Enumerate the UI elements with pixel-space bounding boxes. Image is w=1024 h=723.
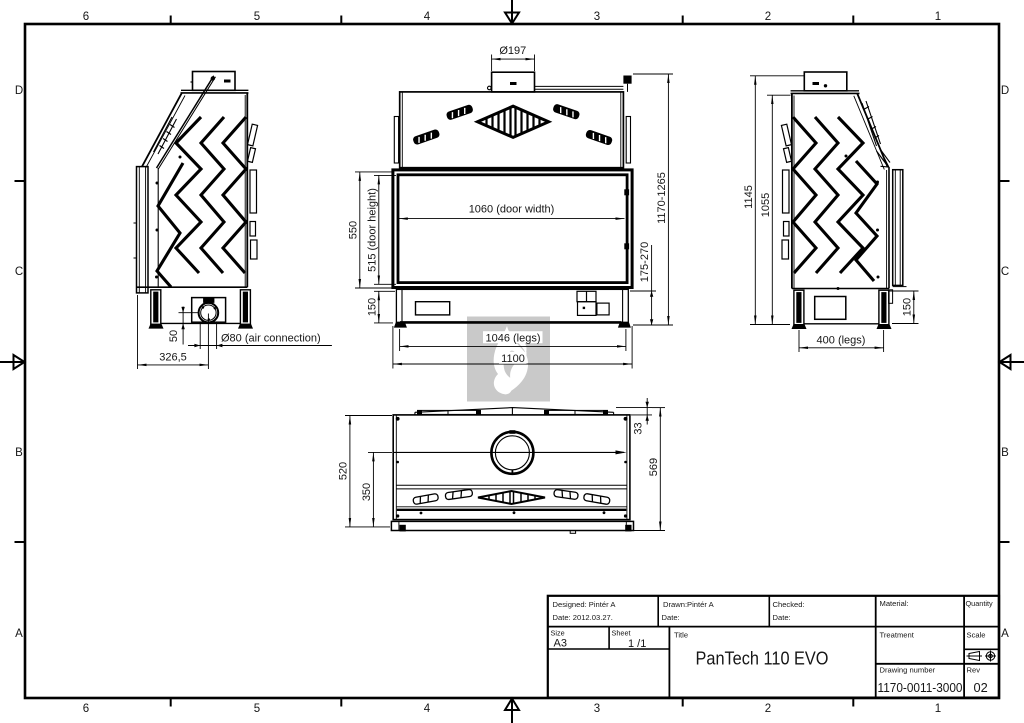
svg-text:D: D [15,85,23,97]
svg-text:Treatment: Treatment [880,631,915,640]
svg-text:5: 5 [254,11,260,23]
svg-text:Designed: Pintér A: Designed: Pintér A [553,600,617,609]
svg-text:PanTech 110 EVO: PanTech 110 EVO [696,649,829,669]
svg-text:150: 150 [366,298,378,316]
svg-text:Checked:: Checked: [773,600,805,609]
svg-text:Rev: Rev [967,666,981,675]
svg-text:1055: 1055 [760,193,772,217]
svg-text:Ø197: Ø197 [499,45,526,57]
svg-text:Size: Size [551,629,565,638]
svg-text:2: 2 [765,703,771,715]
svg-text:1: 1 [935,703,941,715]
svg-text:6: 6 [83,11,89,23]
svg-text:Drawn:Pintér A: Drawn:Pintér A [663,600,715,609]
svg-text:1170-0011-3000: 1170-0011-3000 [878,680,963,695]
svg-text:A: A [1001,628,1009,640]
svg-text:Material:: Material: [880,599,909,608]
svg-text:33: 33 [633,422,645,434]
svg-text:1046 (legs): 1046 (legs) [485,332,540,344]
svg-text:C: C [1001,266,1009,278]
svg-text:C: C [15,266,23,278]
svg-text:4: 4 [424,11,431,23]
svg-text:569: 569 [648,458,660,476]
svg-text:5: 5 [254,703,260,715]
svg-text:Ø80 (air connection): Ø80 (air connection) [221,332,321,344]
svg-text:50: 50 [168,330,180,342]
svg-text:Scale: Scale [967,631,986,640]
svg-text:B: B [1001,447,1009,459]
svg-text:400 (legs): 400 (legs) [817,334,866,346]
svg-text:550: 550 [348,221,360,239]
svg-text:350: 350 [361,483,373,501]
svg-text:3: 3 [594,11,600,23]
svg-text:Drawing number: Drawing number [880,666,936,675]
svg-text:1: 1 [935,11,941,23]
svg-text:Date:: Date: [773,613,791,622]
svg-text:Date: 2012.03.27.: Date: 2012.03.27. [553,613,613,622]
svg-text:1145: 1145 [743,185,755,209]
svg-text:B: B [15,447,23,459]
svg-text:6: 6 [83,703,89,715]
svg-text:520: 520 [337,462,349,480]
svg-text:175-270: 175-270 [639,242,651,282]
svg-text:02: 02 [974,680,988,695]
svg-text:3: 3 [594,703,600,715]
svg-text:A3: A3 [554,638,567,650]
svg-text:4: 4 [424,703,431,715]
svg-text:1170-1265: 1170-1265 [656,172,668,224]
svg-text:Title: Title [674,631,688,640]
svg-text:1 /1: 1 /1 [628,638,646,650]
svg-text:Date:: Date: [662,613,680,622]
svg-text:Quantity: Quantity [966,599,994,608]
svg-text:2: 2 [765,11,771,23]
svg-text:515 (door height): 515 (door height) [366,188,378,272]
svg-text:150: 150 [901,298,913,316]
svg-text:1100: 1100 [501,353,525,365]
svg-text:326,5: 326,5 [159,351,187,363]
svg-text:Sheet: Sheet [612,629,631,638]
svg-text:A: A [15,628,23,640]
svg-text:D: D [1001,85,1009,97]
svg-text:1060 (door width): 1060 (door width) [469,204,555,216]
